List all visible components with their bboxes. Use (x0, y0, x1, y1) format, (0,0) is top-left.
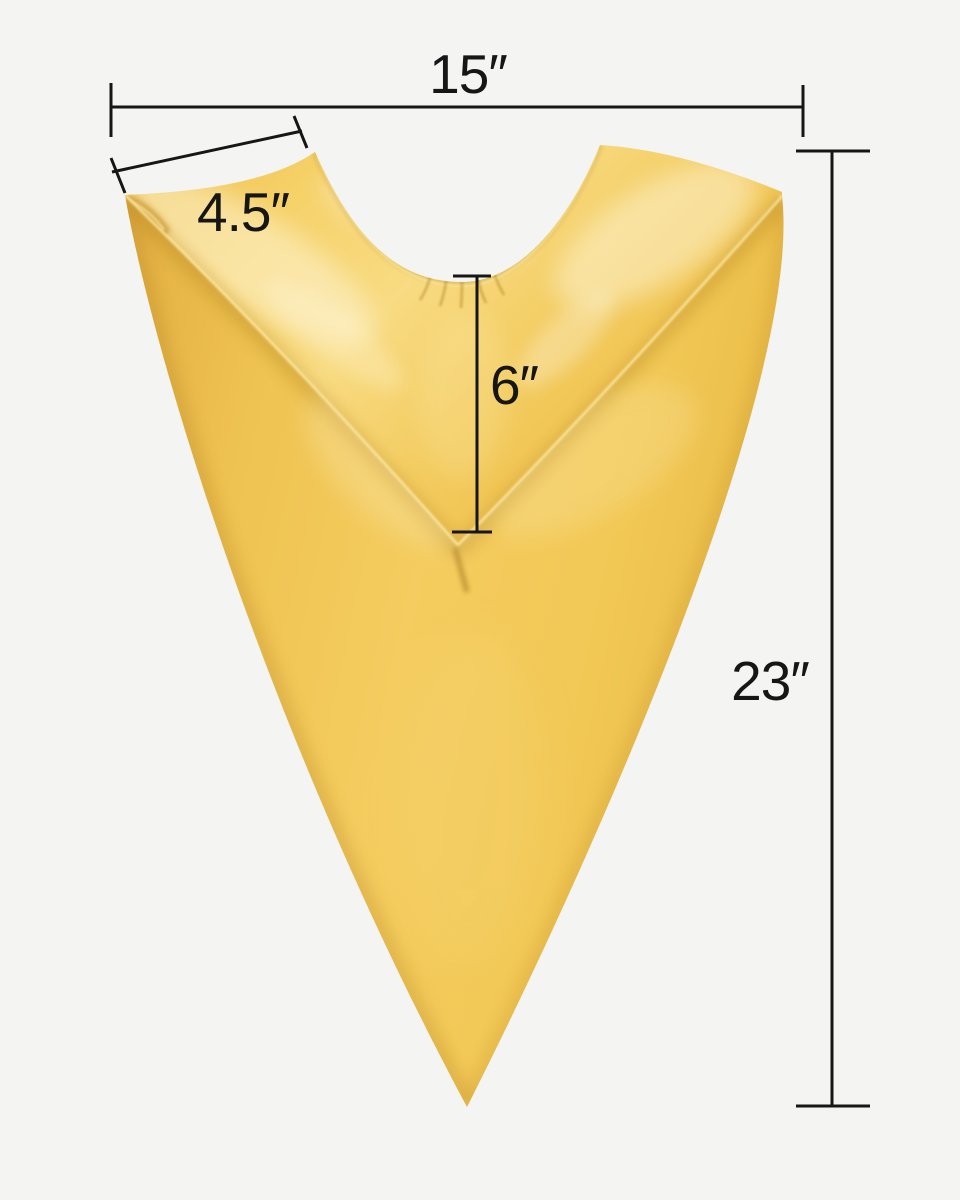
dimension-label-side-length: 23″ (731, 650, 809, 712)
dimension-label-neck-depth: 6″ (490, 354, 539, 416)
dimension-label-shoulder-width: 4.5″ (197, 181, 289, 243)
stole-diagram-svg: 15″ 4.5″ 6″ 23″ (0, 0, 960, 1200)
stole-image (103, 133, 783, 1107)
product-dimension-diagram: 15″ 4.5″ 6″ 23″ (0, 0, 960, 1200)
dimension-label-top-width: 15″ (429, 43, 507, 105)
dimension-line-side-length (796, 151, 870, 1106)
